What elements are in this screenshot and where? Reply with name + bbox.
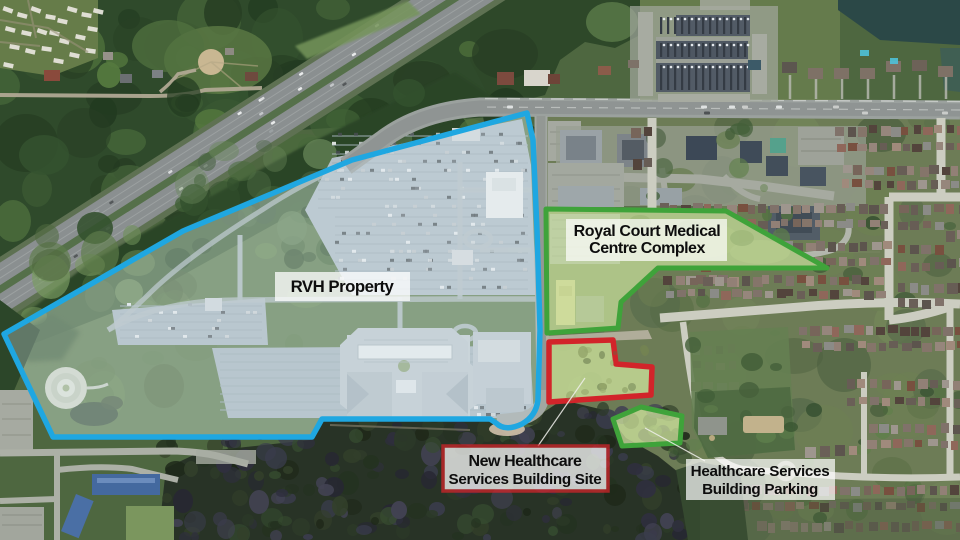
svg-text:Healthcare Services: Healthcare Services <box>691 463 830 480</box>
svg-text:New Healthcare: New Healthcare <box>468 453 582 470</box>
svg-text:Services Building Site: Services Building Site <box>449 471 602 488</box>
svg-text:Royal Court Medical: Royal Court Medical <box>574 223 721 240</box>
svg-text:Centre Complex: Centre Complex <box>589 240 705 257</box>
svg-text:Building Parking: Building Parking <box>702 481 818 498</box>
svg-text:RVH Property: RVH Property <box>291 277 395 296</box>
